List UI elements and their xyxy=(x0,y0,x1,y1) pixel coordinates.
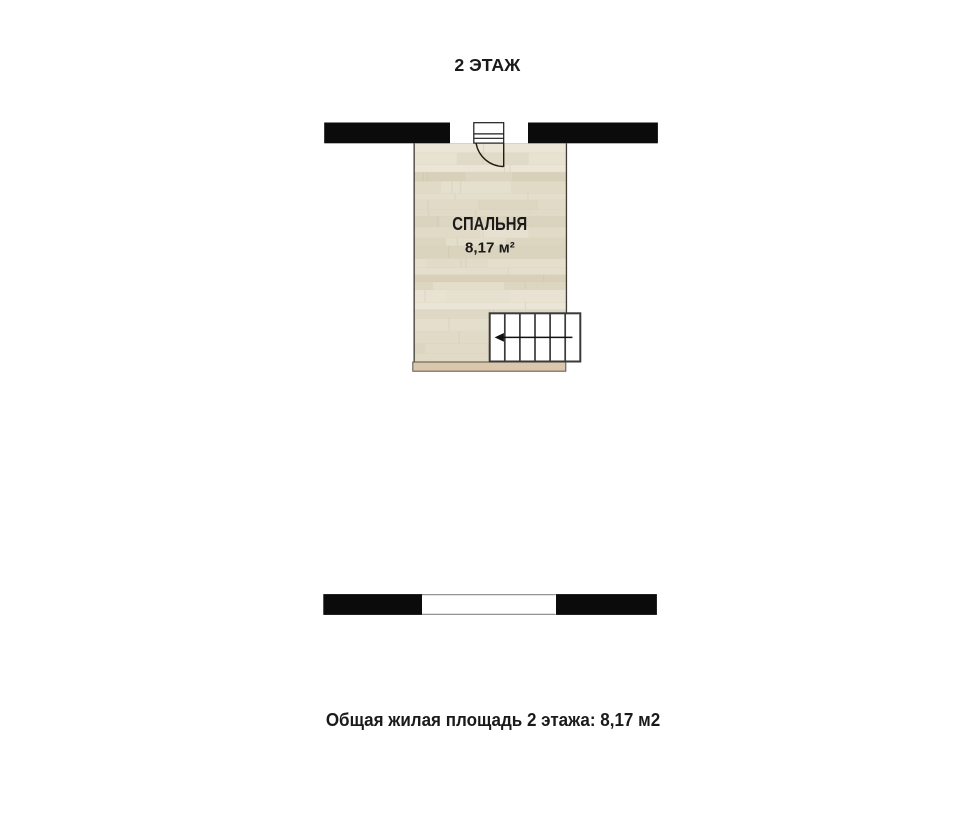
svg-text:СПАЛЬНЯ: СПАЛЬНЯ xyxy=(452,214,527,235)
svg-text:Общая жилая площадь 2 этажа: 8: Общая жилая площадь 2 этажа: 8,17 м2 xyxy=(326,710,660,731)
svg-text:8,17 м²: 8,17 м² xyxy=(465,239,515,256)
svg-text:2 ЭТАЖ: 2 ЭТАЖ xyxy=(454,55,521,75)
